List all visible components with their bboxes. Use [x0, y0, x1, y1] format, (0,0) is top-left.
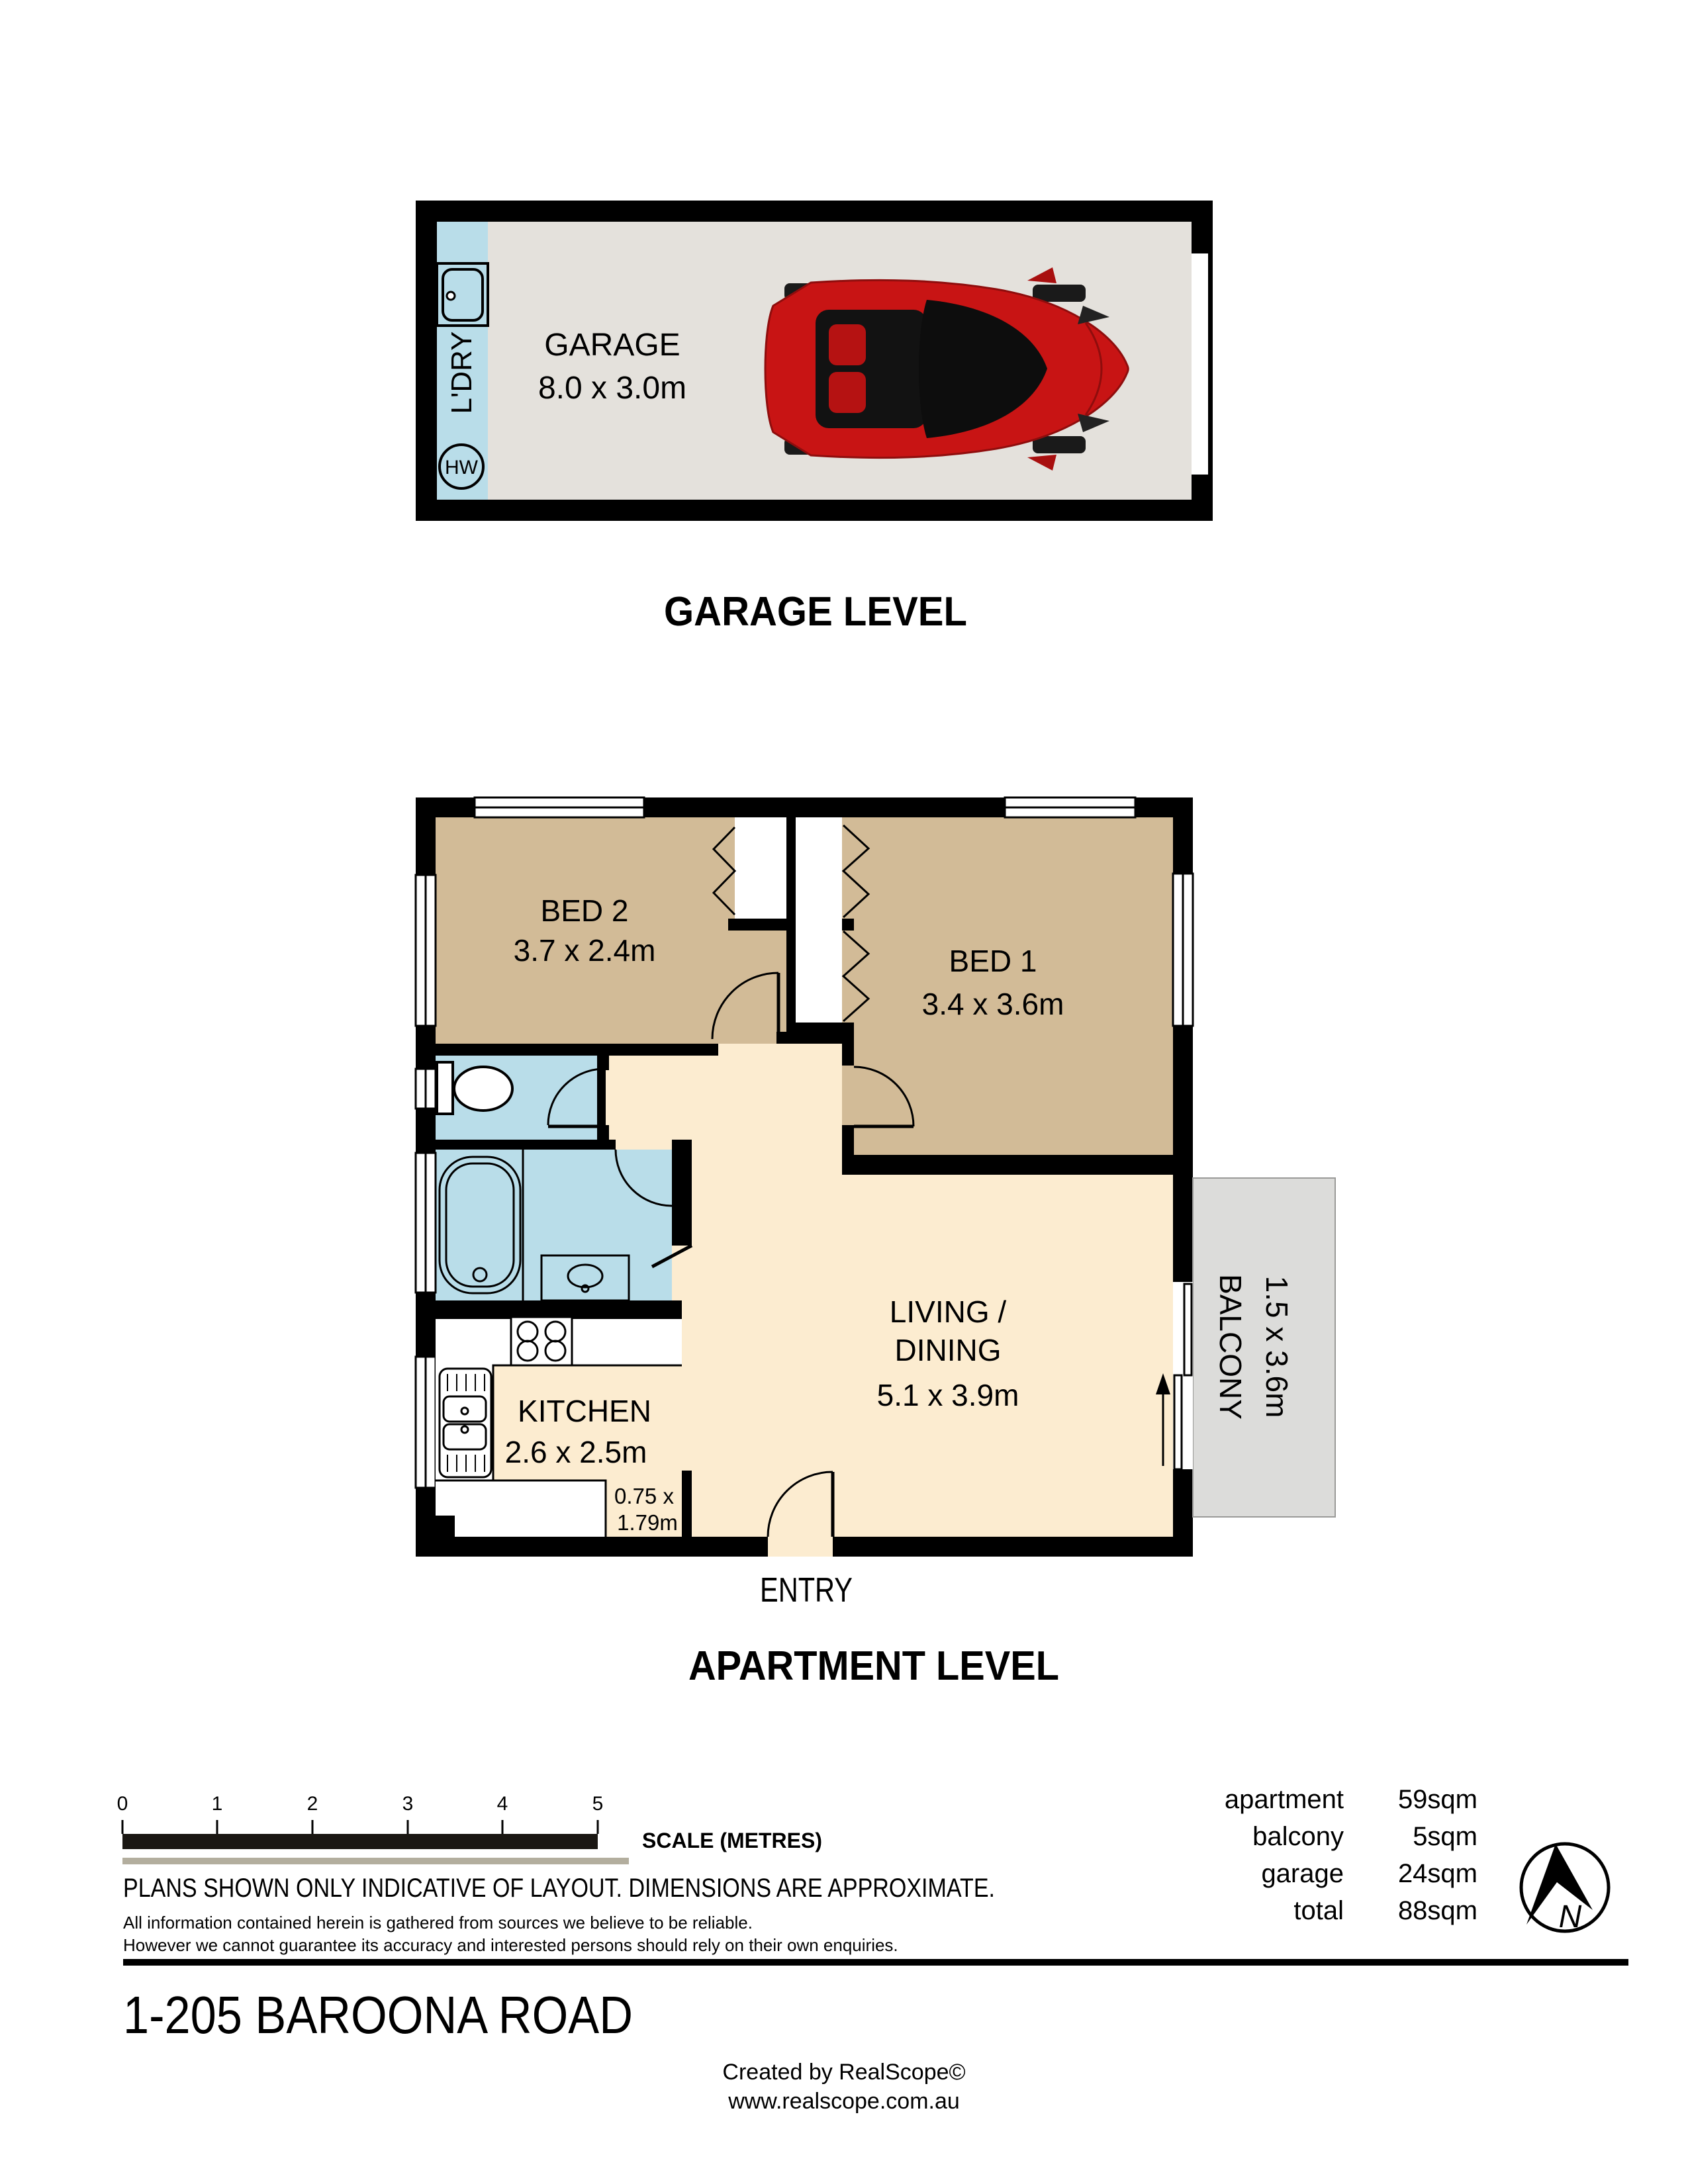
disclaimer-line3: However we cannot guarantee its accuracy…	[123, 1935, 898, 1955]
living-label-line2: DINING	[895, 1333, 1002, 1367]
garage-room-dims: 8.0 x 3.0m	[538, 371, 686, 406]
bed1-robe	[796, 817, 842, 1023]
area-row-label: balcony	[1252, 1822, 1344, 1851]
credit-line: Created by RealScope©	[722, 2060, 965, 2085]
entry-label: ENTRY	[760, 1571, 853, 1610]
area-row-value: 59sqm	[1398, 1785, 1477, 1814]
bed2-floor	[436, 817, 735, 1044]
garage-room-label: GARAGE	[544, 328, 680, 363]
north-label: N	[1559, 1899, 1582, 1934]
north-arrow-icon: N	[1521, 1844, 1609, 1934]
apartment-level-title: APARTMENT LEVEL	[688, 1643, 1059, 1689]
kitchen-sink-icon	[440, 1369, 491, 1477]
scale-bar-secondary	[122, 1858, 629, 1864]
kitchen-dims: 2.6 x 2.5m	[505, 1435, 647, 1469]
scale-tick-3: 3	[402, 1793, 414, 1815]
scale-bar-primary	[122, 1834, 598, 1849]
window-left-wc	[416, 1069, 436, 1109]
website-line: www.realscope.com.au	[727, 2089, 960, 2114]
window-top-bed1	[1005, 797, 1135, 817]
footer-divider	[123, 1959, 1628, 1966]
laundry-label: L'DRY	[445, 332, 478, 414]
scale-tick-marks	[122, 1820, 598, 1834]
floorplan-canvas: L'DRY HW GARAGE 8.0 x 3.0m GARAGE LEVEL	[0, 0, 1688, 2184]
scale-tick-0: 0	[117, 1793, 128, 1815]
disclaimer: PLANS SHOWN ONLY INDICATIVE OF LAYOUT. D…	[123, 1874, 995, 1955]
apartment-level-plan: BED 2 3.7 x 2.4m BED 1 3.4 x 3.6m LIVING…	[416, 797, 1335, 1689]
bed1-dims: 3.4 x 3.6m	[922, 987, 1064, 1021]
disclaimer-line1: PLANS SHOWN ONLY INDICATIVE OF LAYOUT. D…	[123, 1874, 995, 1903]
window-left-bathroom	[416, 1153, 436, 1293]
floorplan-page: L'DRY HW GARAGE 8.0 x 3.0m GARAGE LEVEL	[0, 0, 1688, 2184]
area-table: apartment 59sqm balcony 5sqm garage 24sq…	[1225, 1785, 1477, 1925]
living-dims: 5.1 x 3.9m	[877, 1378, 1019, 1412]
balcony-label: BALCONY	[1213, 1274, 1248, 1420]
balcony-dims: 1.5 x 3.6m	[1260, 1276, 1294, 1418]
bed2-label: BED 2	[541, 893, 629, 928]
hot-water-label: HW	[445, 457, 479, 478]
disclaimer-line2: All information contained herein is gath…	[123, 1913, 753, 1933]
scale-bar: 0 1 2 3 4 5 SCALE (METRES)	[117, 1793, 822, 1864]
area-row-label: garage	[1261, 1859, 1344, 1888]
area-row-value: 24sqm	[1398, 1859, 1477, 1888]
car-illustration	[765, 267, 1128, 471]
vanity-icon	[541, 1255, 629, 1300]
kitchen-label: KITCHEN	[518, 1394, 651, 1428]
area-row-label: total	[1293, 1896, 1344, 1925]
store-dims-line1: 0.75 x	[614, 1484, 674, 1508]
laundry-tub-icon	[437, 263, 488, 326]
window-left-kitchen	[416, 1357, 436, 1488]
scale-tick-4: 4	[497, 1793, 508, 1815]
area-row-label: apartment	[1225, 1785, 1344, 1814]
window-right-bed1	[1173, 874, 1193, 1026]
living-label-line1: LIVING /	[890, 1295, 1007, 1329]
scale-tick-1: 1	[212, 1793, 223, 1815]
area-row-value: 5sqm	[1413, 1822, 1477, 1851]
toilet-icon	[437, 1062, 512, 1114]
area-row-value: 88sqm	[1398, 1896, 1477, 1925]
window-top-bed2	[475, 797, 644, 817]
cooktop-icon	[511, 1317, 572, 1365]
address-title: 1-205 BAROONA ROAD	[123, 1985, 633, 2044]
window-left-bed2	[416, 875, 436, 1026]
store-dims-line2: 1.79m	[617, 1510, 678, 1535]
garage-level-title: GARAGE LEVEL	[664, 589, 967, 635]
bed2-dims: 3.7 x 2.4m	[514, 933, 656, 968]
scale-tick-5: 5	[592, 1793, 604, 1815]
bed1-label: BED 1	[949, 944, 1037, 978]
garage-door-panel	[1208, 253, 1213, 475]
scale-tick-2: 2	[307, 1793, 318, 1815]
bed2-robe	[735, 817, 786, 919]
garage-level-plan: L'DRY HW GARAGE 8.0 x 3.0m GARAGE LEVEL	[416, 201, 1213, 635]
scale-bar-label: SCALE (METRES)	[642, 1829, 822, 1852]
bed1-floor	[842, 817, 1173, 1155]
